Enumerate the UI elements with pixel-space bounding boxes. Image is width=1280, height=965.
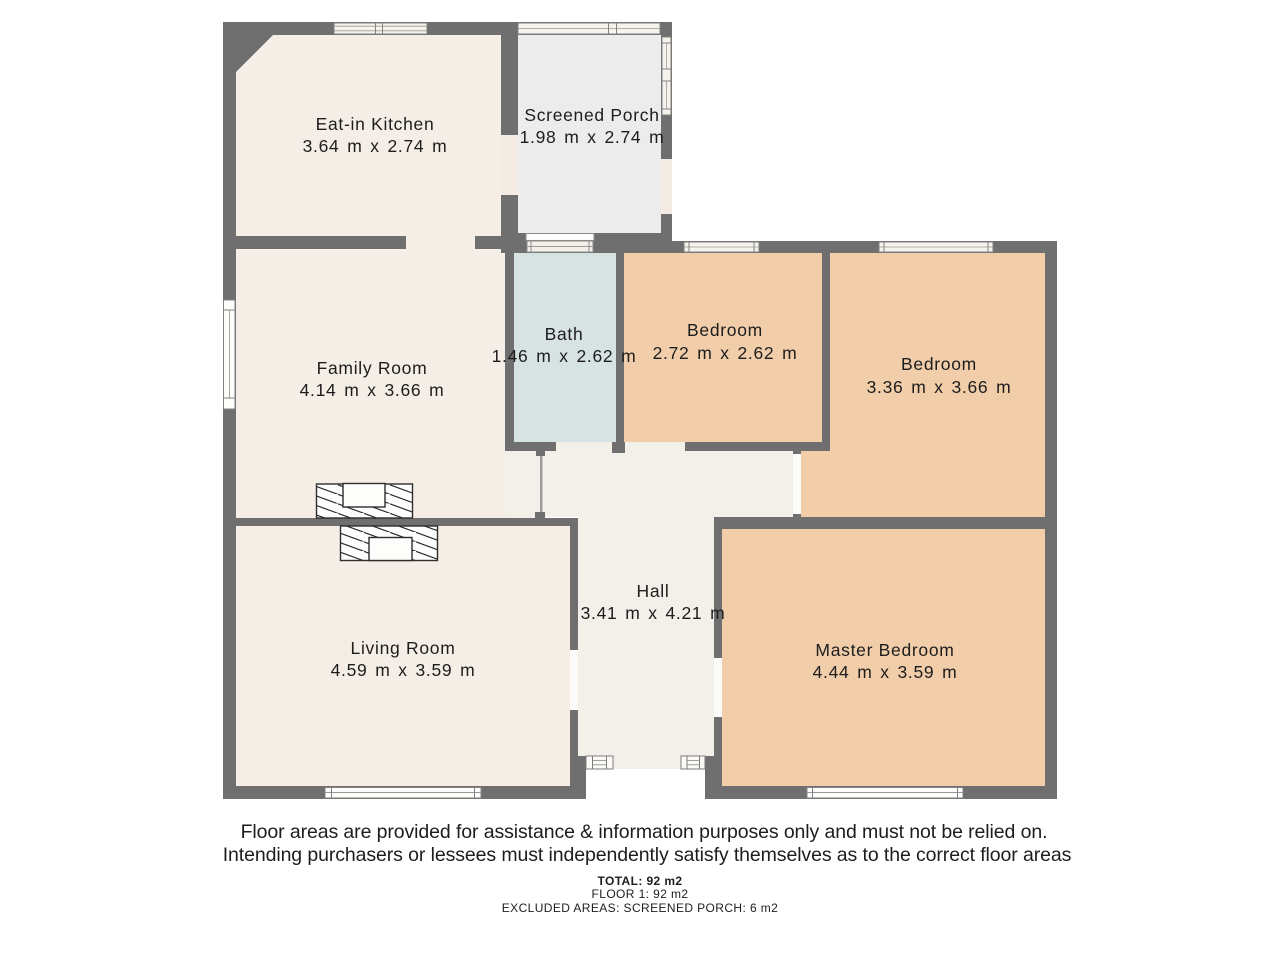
svg-text:4.44 m x 3.59 m: 4.44 m x 3.59 m: [813, 662, 958, 682]
svg-text:FLOOR 1: 92 m2: FLOOR 1: 92 m2: [592, 887, 689, 901]
svg-text:Family Room: Family Room: [317, 358, 428, 378]
svg-text:4.59 m x 3.59 m: 4.59 m x 3.59 m: [331, 660, 476, 680]
svg-text:3.64 m x 2.74 m: 3.64 m x 2.74 m: [303, 136, 448, 156]
svg-text:Master Bedroom: Master Bedroom: [815, 640, 954, 660]
svg-text:Intending purchasers or lessee: Intending purchasers or lessees must ind…: [223, 844, 1072, 866]
svg-text:EXCLUDED AREAS: SCREENED PORCH: EXCLUDED AREAS: SCREENED PORCH: 6 m2: [502, 901, 778, 915]
svg-text:2.72 m x 2.62 m: 2.72 m x 2.62 m: [653, 343, 798, 363]
svg-text:1.46 m x 2.62 m: 1.46 m x 2.62 m: [492, 346, 637, 366]
svg-text:Eat-in Kitchen: Eat-in Kitchen: [316, 114, 435, 134]
svg-text:Screened Porch: Screened Porch: [524, 105, 659, 125]
svg-text:Hall: Hall: [637, 581, 670, 601]
svg-text:Living Room: Living Room: [351, 638, 456, 658]
svg-text:Floor areas are provided for a: Floor areas are provided for assistance …: [241, 821, 1048, 843]
svg-text:3.36 m x 3.66 m: 3.36 m x 3.66 m: [867, 377, 1012, 397]
svg-text:3.41 m x 4.21 m: 3.41 m x 4.21 m: [581, 603, 726, 623]
svg-text:1.98 m x 2.74 m: 1.98 m x 2.74 m: [520, 127, 665, 147]
svg-text:4.14 m x 3.66 m: 4.14 m x 3.66 m: [300, 380, 445, 400]
svg-text:Bedroom: Bedroom: [901, 354, 977, 374]
svg-text:Bedroom: Bedroom: [687, 320, 763, 340]
svg-text:Bath: Bath: [545, 324, 584, 344]
svg-text:TOTAL: 92 m2: TOTAL: 92 m2: [597, 874, 682, 888]
